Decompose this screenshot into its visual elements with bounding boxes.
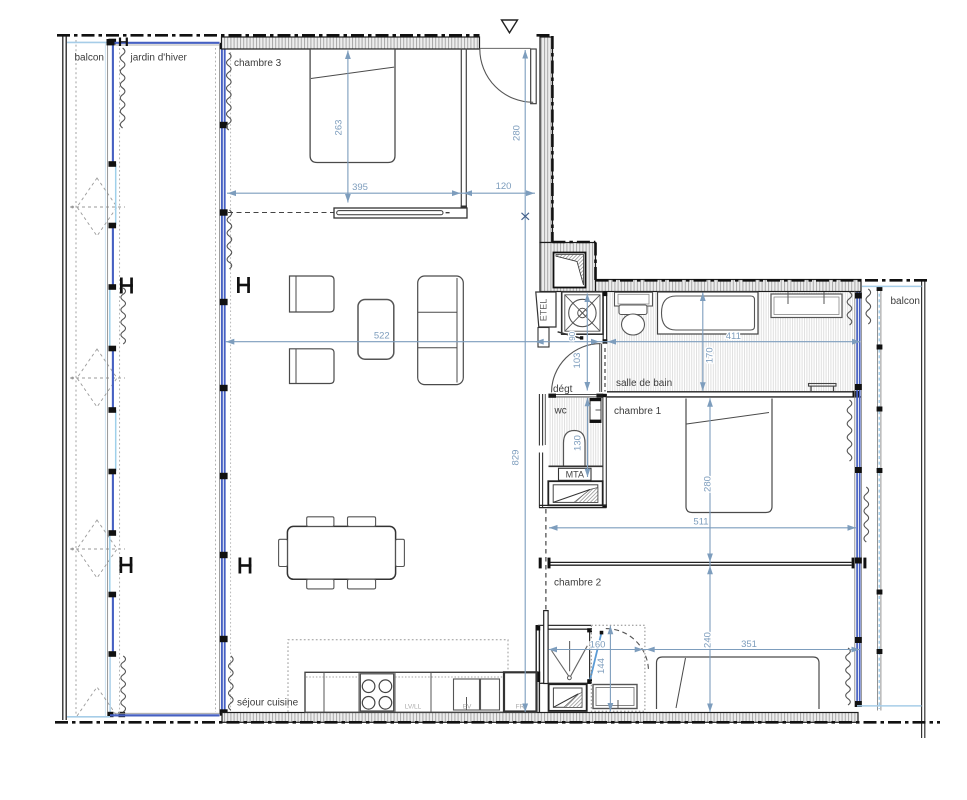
svg-text:522: 522	[374, 330, 390, 341]
svg-text:395: 395	[352, 182, 368, 193]
svg-text:balcon: balcon	[75, 53, 104, 64]
svg-text:MTA: MTA	[566, 470, 584, 480]
svg-text:160: 160	[590, 639, 606, 650]
svg-text:240: 240	[702, 632, 713, 648]
svg-text:LV/LL: LV/LL	[405, 704, 422, 711]
svg-text:jardin d'hiver: jardin d'hiver	[130, 53, 188, 64]
svg-text:salle de bain: salle de bain	[616, 378, 672, 389]
svg-text:280: 280	[702, 476, 713, 492]
svg-text:351: 351	[741, 639, 757, 650]
svg-text:chambre 3: chambre 3	[234, 58, 282, 69]
svg-text:90: 90	[568, 331, 577, 340]
svg-text:130: 130	[572, 435, 583, 451]
svg-text:144: 144	[596, 658, 607, 674]
svg-text:wc: wc	[554, 406, 567, 417]
svg-text:511: 511	[693, 516, 708, 527]
svg-text:ETEL: ETEL	[539, 299, 549, 322]
svg-text:103: 103	[572, 353, 583, 369]
svg-text:263: 263	[333, 120, 344, 136]
svg-text:EV: EV	[463, 704, 472, 711]
svg-text:411: 411	[726, 331, 741, 342]
svg-text:balcon: balcon	[891, 296, 920, 307]
svg-text:dégt: dégt	[553, 384, 573, 395]
svg-text:829: 829	[511, 450, 522, 466]
svg-text:chambre 2: chambre 2	[554, 578, 602, 589]
svg-text:170: 170	[704, 347, 715, 363]
svg-text:chambre 1: chambre 1	[614, 406, 662, 417]
svg-text:120: 120	[496, 181, 512, 192]
svg-text:280: 280	[511, 125, 522, 141]
svg-text:séjour cuisine: séjour cuisine	[237, 698, 299, 709]
